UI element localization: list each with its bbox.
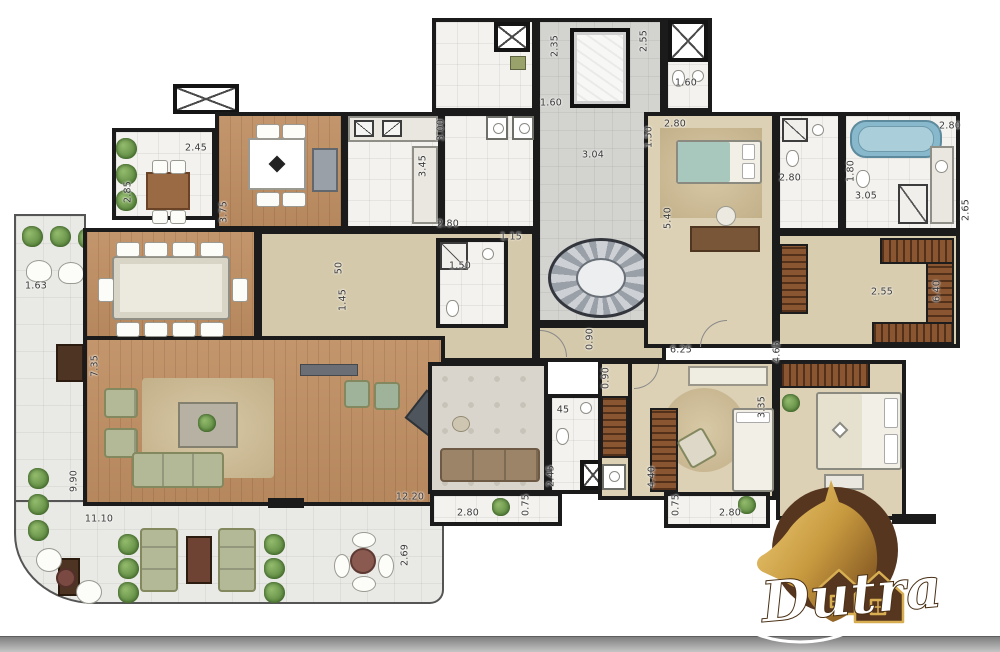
plant (118, 582, 139, 603)
office-sofa (440, 448, 540, 482)
sink (580, 402, 592, 414)
wall-stub (268, 498, 304, 508)
chair (232, 278, 248, 302)
chair (200, 322, 224, 337)
plant (198, 414, 216, 432)
terrace-sofa (218, 528, 256, 592)
terrace-table (350, 548, 376, 574)
pillow (884, 398, 898, 428)
dimension-label: 2.65 (961, 199, 972, 221)
chair (144, 322, 168, 337)
living-sofa (132, 452, 224, 488)
chair (144, 242, 168, 257)
plant (782, 394, 800, 412)
cooktop (354, 120, 374, 137)
terrace-chair (352, 576, 376, 592)
staircase-core (576, 258, 626, 298)
wardrobe (872, 322, 954, 344)
varanda-table (146, 172, 190, 210)
terrace-fire-table (186, 536, 212, 584)
chair (282, 192, 306, 207)
wardrobe (650, 408, 678, 492)
plant (118, 534, 139, 555)
chair (116, 322, 140, 337)
dining-table (112, 256, 230, 320)
chair (116, 242, 140, 257)
plant (264, 534, 285, 555)
terrace-chair (352, 532, 376, 548)
duct-shaft (173, 84, 239, 114)
terrace-chair (36, 548, 62, 572)
chair (170, 210, 186, 224)
washing-machine (602, 464, 626, 490)
sink (692, 70, 704, 82)
plant (28, 520, 49, 541)
shower (898, 184, 928, 224)
pillow (884, 434, 898, 464)
plant (50, 226, 71, 247)
wardrobe (926, 262, 954, 326)
terrace-chair (378, 554, 394, 578)
wardrobe (880, 238, 954, 264)
sink (935, 160, 948, 173)
bed-cover (678, 142, 730, 182)
terrace-sofa (140, 528, 178, 592)
plant (118, 558, 139, 579)
toilet (672, 70, 685, 87)
washing-machine (486, 116, 508, 140)
chair (172, 322, 196, 337)
brand-logo: Dutra (735, 468, 950, 652)
sink (812, 124, 824, 136)
chair (200, 242, 224, 257)
terrace-chair (58, 262, 84, 284)
armchair (104, 388, 138, 418)
chair (152, 160, 168, 174)
kitchen-sink (382, 120, 402, 137)
chair (98, 278, 114, 302)
terrace-chair (334, 554, 350, 578)
toilet (446, 300, 459, 317)
plant (22, 226, 43, 247)
armchair (374, 382, 400, 410)
kitchen-counter (412, 146, 438, 224)
sink (482, 248, 494, 260)
plant (116, 138, 137, 159)
pillow (742, 163, 755, 179)
floor-plan: 2.452.853.753.453.002.352.551.603.041.60… (0, 0, 1000, 652)
terrace-chair (26, 260, 52, 282)
service-cabinet (510, 56, 526, 70)
terrace-chair (76, 580, 102, 604)
terrace-round-table (56, 568, 76, 588)
toilet (786, 150, 799, 167)
desk-chair (716, 206, 736, 226)
duct-shaft (668, 20, 708, 62)
chair (170, 160, 186, 174)
side-table (452, 416, 470, 432)
toilet (556, 428, 569, 445)
desk (688, 366, 768, 386)
plant (116, 190, 137, 211)
chair (152, 210, 168, 224)
chair (282, 124, 306, 139)
wardrobe (780, 362, 870, 388)
vanity (930, 146, 954, 224)
plant (492, 498, 510, 516)
tv-sideboard (300, 364, 358, 376)
bathtub-inner (858, 126, 934, 152)
shower (440, 242, 468, 270)
sideboard (312, 148, 338, 192)
armchair (344, 380, 370, 408)
plant (28, 494, 49, 515)
duct-shaft (494, 22, 530, 52)
washing-machine (512, 116, 534, 140)
plant (28, 468, 49, 489)
plant (116, 164, 137, 185)
terrace-planter (56, 344, 84, 382)
chair (172, 242, 196, 257)
plant (264, 582, 285, 603)
plant (264, 558, 285, 579)
toilet (856, 170, 870, 188)
wardrobe (780, 244, 808, 314)
desk (690, 226, 760, 252)
pillow (736, 412, 770, 423)
pillow (742, 144, 755, 160)
wardrobe (601, 396, 628, 458)
shower (782, 118, 808, 142)
chair (256, 192, 280, 207)
elevator (570, 28, 630, 108)
chair (256, 124, 280, 139)
